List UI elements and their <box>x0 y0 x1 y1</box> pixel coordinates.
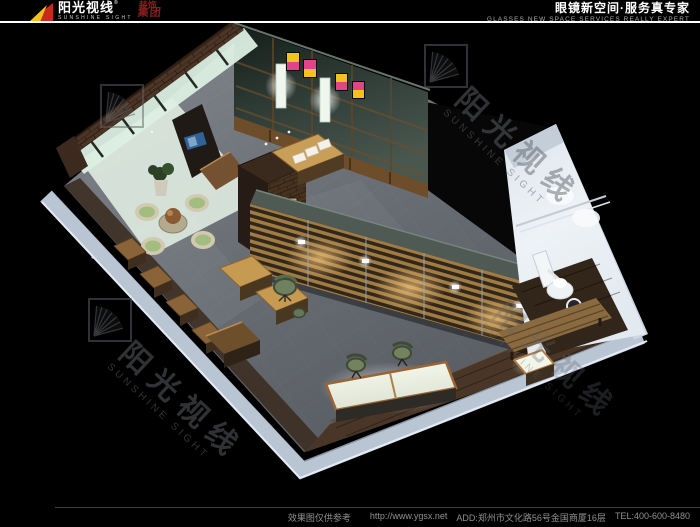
footer-tel: TEL:400-600-8480 <box>615 511 690 524</box>
header-bar: 阳光视线® SUNSHINE SIGHT 装饰 集团 眼镜新空间·服务真专家 G… <box>0 0 700 23</box>
store-render <box>0 0 700 527</box>
footer-disclaimer: 效果图仅供参考 <box>288 511 351 524</box>
header-divider <box>0 21 700 23</box>
registered-mark: ® <box>114 0 119 6</box>
brand-name: 阳光视线® <box>58 1 133 14</box>
footer-url: http://www.ygsx.net <box>370 511 448 524</box>
brand-group-bottom: 集团 <box>137 9 162 19</box>
footer-bar: 效果图仅供参考 http://www.ygsx.net ADD:郑州市文化路56… <box>288 511 690 524</box>
footer-divider <box>55 507 700 508</box>
poster-canvas: 阳光视线 SUNSHINE SIGHT 阳光视线 SUNSHINE SIGHT … <box>0 0 700 527</box>
brand-group: 装饰 集团 <box>137 1 163 19</box>
brand-name-text: 阳光视线 <box>58 0 114 15</box>
tagline-cn: 眼镜新空间·服务真专家 <box>487 2 690 14</box>
footer-address: ADD:郑州市文化路56号金国商厦16层 <box>456 511 606 524</box>
brand-fan-icon <box>28 2 54 23</box>
brand-logo: 阳光视线® SUNSHINE SIGHT 装饰 集团 <box>28 1 162 23</box>
